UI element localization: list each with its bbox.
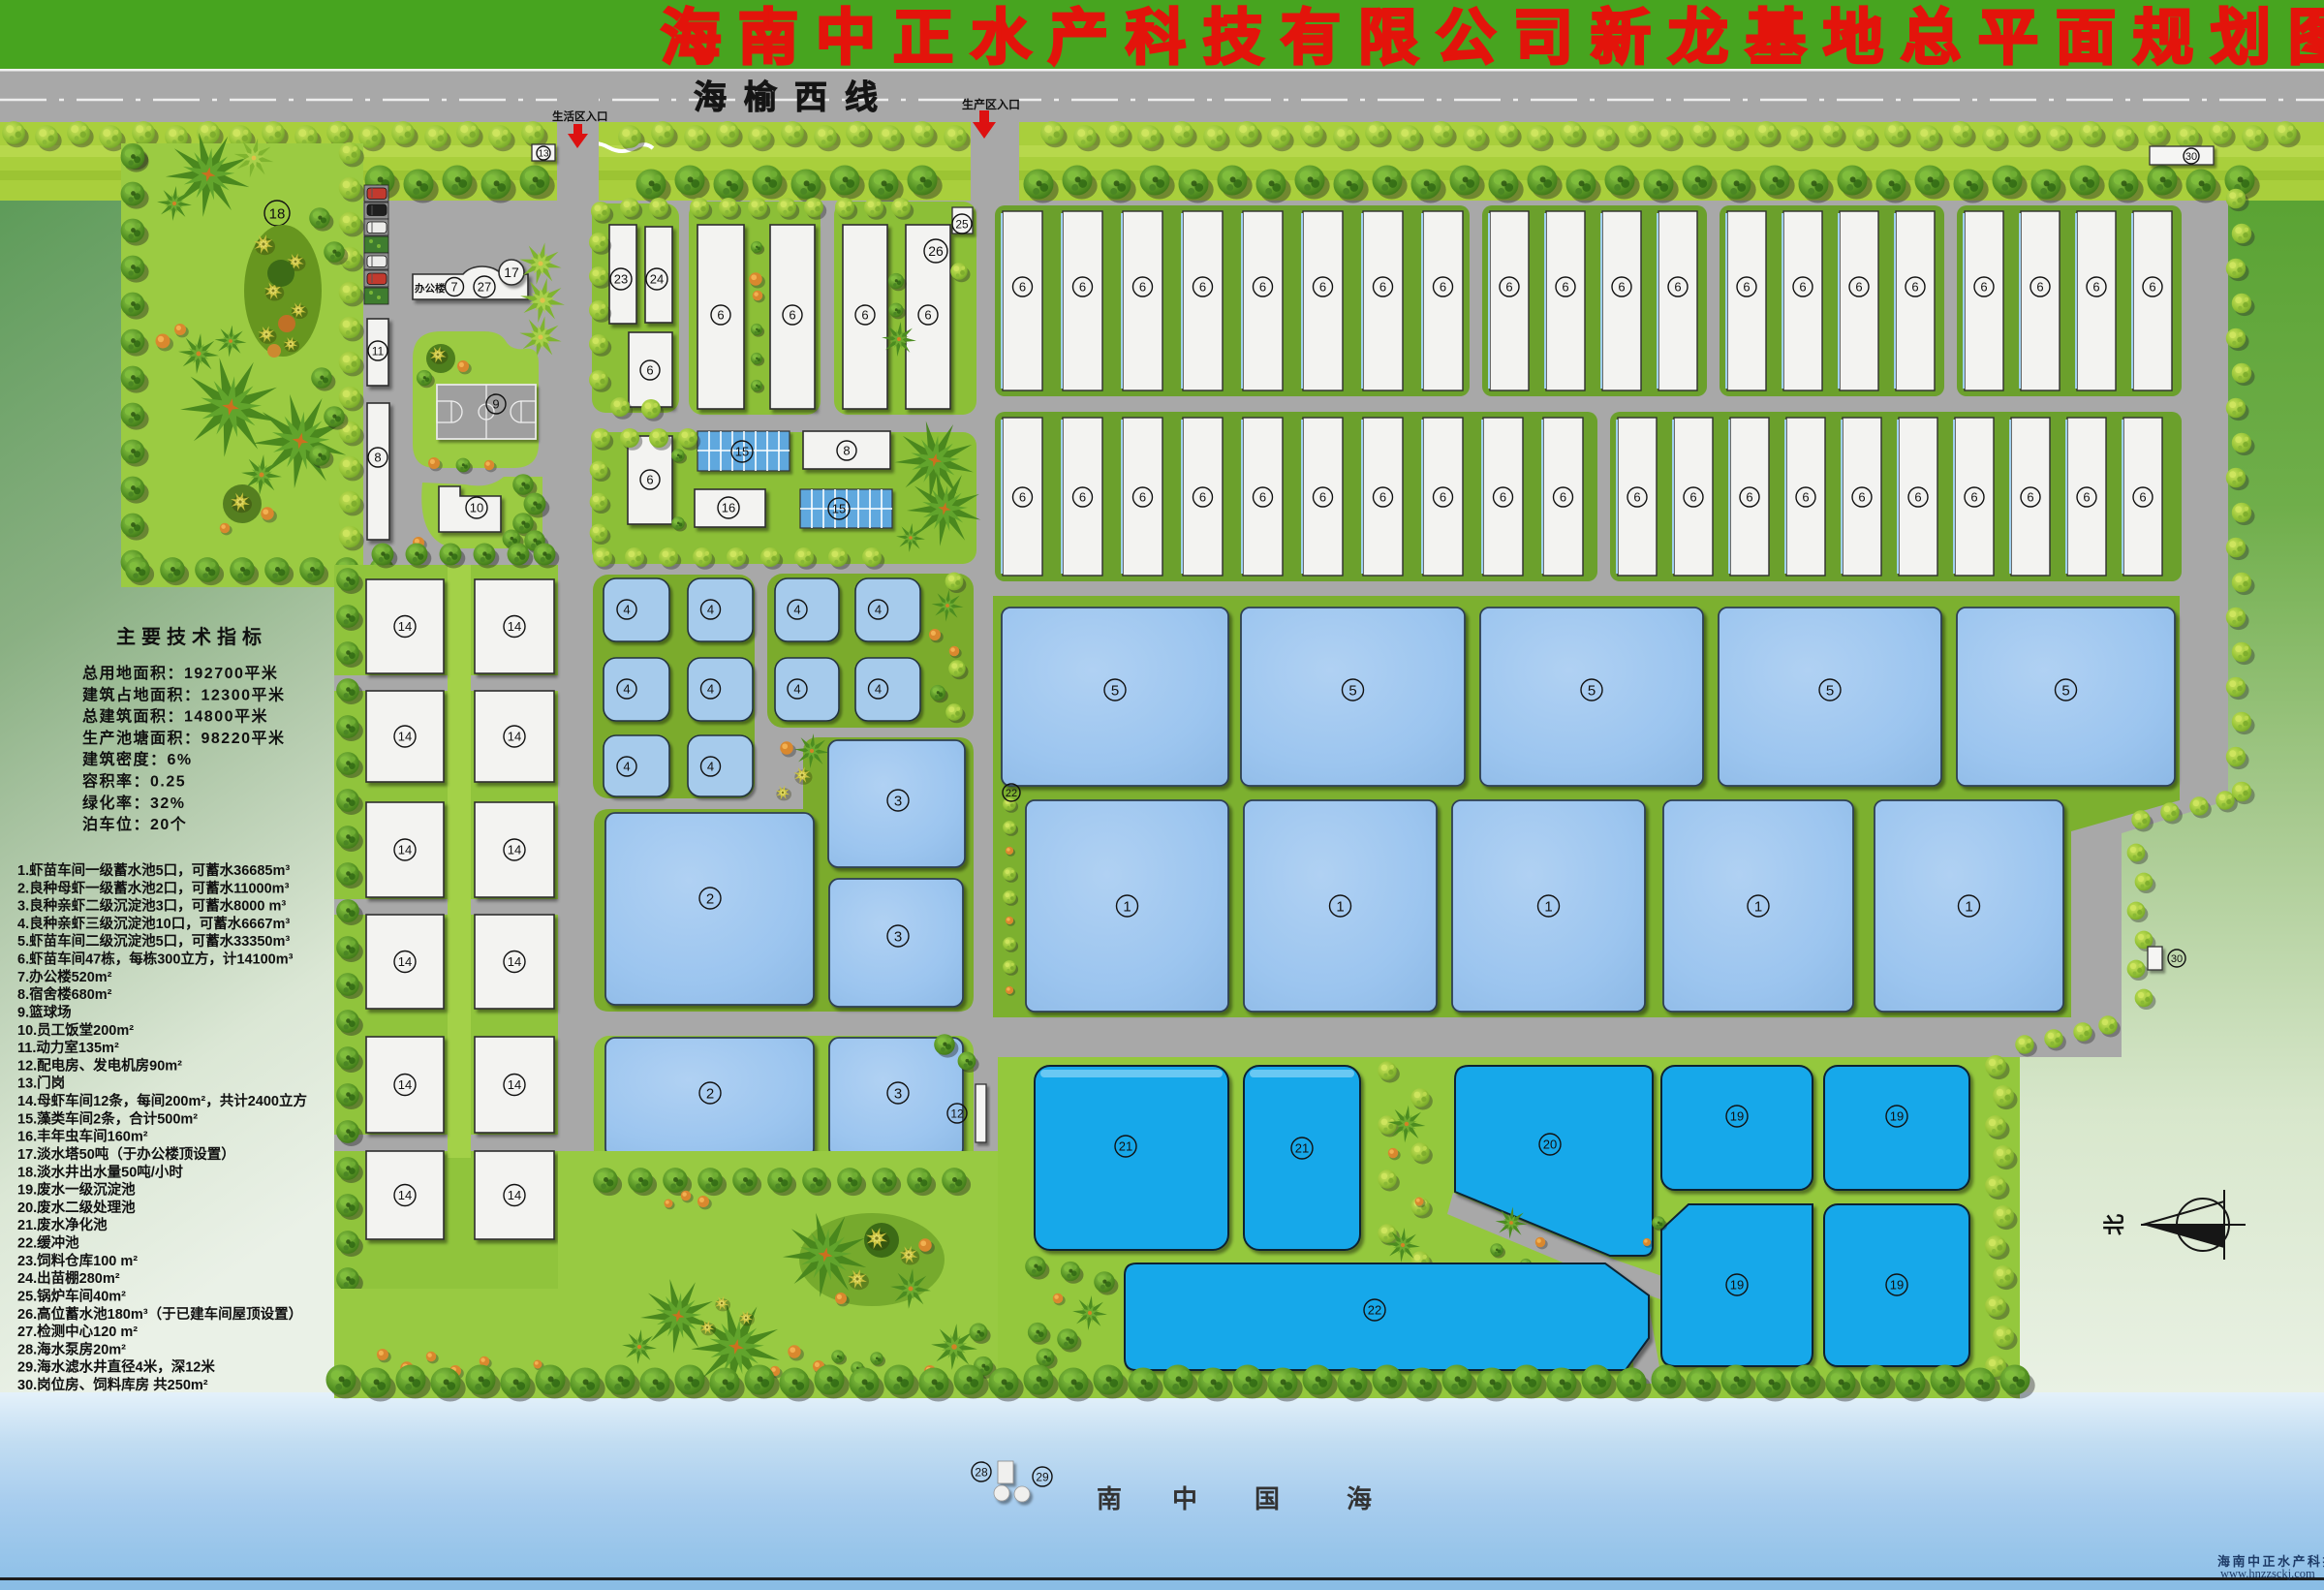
svg-text:20: 20 [1543, 1138, 1557, 1152]
svg-text:6: 6 [861, 308, 868, 323]
svg-text:14: 14 [508, 1077, 521, 1092]
svg-text:21.废水净化池: 21.废水净化池 [17, 1216, 108, 1233]
svg-text:25: 25 [955, 217, 969, 231]
svg-text:6: 6 [1674, 280, 1681, 295]
svg-text:4: 4 [793, 603, 800, 617]
svg-text:17: 17 [504, 265, 519, 280]
svg-text:6: 6 [1019, 280, 1026, 295]
svg-text:19: 19 [1730, 1278, 1744, 1293]
svg-text:15.藻类车间2条，合计500m²: 15.藻类车间2条，合计500m² [17, 1109, 198, 1127]
svg-text:6: 6 [1019, 490, 1026, 505]
svg-text:10.员工饭堂200m²: 10.员工饭堂200m² [17, 1021, 134, 1039]
svg-text:14: 14 [398, 1077, 412, 1092]
svg-text:4: 4 [623, 760, 630, 774]
svg-text:6: 6 [1259, 280, 1266, 295]
svg-text:4: 4 [875, 682, 882, 697]
svg-text:23: 23 [614, 272, 628, 287]
svg-text:4: 4 [707, 603, 714, 617]
svg-text:1: 1 [1336, 898, 1344, 915]
svg-text:19: 19 [1890, 1278, 1904, 1293]
svg-text:1: 1 [1965, 898, 1972, 915]
svg-text:14.母虾车间12条，每间200m²，共计2400立方: 14.母虾车间12条，每间200m²，共计2400立方 [17, 1092, 307, 1109]
svg-text:28.海水泵房20m²: 28.海水泵房20m² [17, 1340, 126, 1357]
svg-text:5: 5 [1588, 682, 1596, 699]
svg-text:6: 6 [1689, 490, 1696, 505]
svg-text:26: 26 [928, 243, 944, 259]
svg-text:30.岗位房、饲料库房 共250m²: 30.岗位房、饲料库房 共250m² [17, 1376, 208, 1393]
svg-text:中: 中 [1172, 1484, 1197, 1513]
svg-text:容积率：0.25: 容积率：0.25 [81, 772, 186, 791]
svg-text:12: 12 [950, 1107, 964, 1120]
svg-text:6: 6 [717, 308, 724, 323]
svg-text:9.篮球场: 9.篮球场 [17, 1003, 72, 1020]
svg-text:绿化率：32%: 绿化率：32% [82, 794, 186, 812]
svg-text:14: 14 [398, 1188, 412, 1202]
svg-text:6: 6 [1802, 490, 1809, 505]
svg-text:6: 6 [2139, 490, 2146, 505]
svg-text:6: 6 [1743, 280, 1750, 295]
svg-text:6: 6 [1199, 280, 1206, 295]
svg-text:6: 6 [1259, 490, 1266, 505]
svg-text:21: 21 [1119, 1139, 1132, 1154]
svg-text:6: 6 [924, 308, 931, 323]
svg-text:主要技术指标: 主要技术指标 [116, 625, 267, 648]
svg-text:14: 14 [398, 843, 412, 857]
svg-text:14: 14 [398, 954, 412, 969]
svg-text:1: 1 [1544, 898, 1552, 915]
svg-text:5: 5 [1111, 682, 1119, 699]
svg-text:6: 6 [2036, 280, 2043, 295]
svg-text:6: 6 [2027, 490, 2033, 505]
svg-text:总建筑面积：14800平米: 总建筑面积：14800平米 [82, 707, 268, 726]
svg-text:19: 19 [1730, 1109, 1744, 1124]
svg-text:4: 4 [875, 603, 882, 617]
svg-text:生产区入口: 生产区入口 [962, 97, 1020, 111]
svg-text:海: 海 [1347, 1484, 1372, 1513]
svg-text:6: 6 [1379, 280, 1386, 295]
svg-text:5.虾苗车间二级沉淀池5口，可蓄水33350m³: 5.虾苗车间二级沉淀池5口，可蓄水33350m³ [17, 932, 290, 950]
svg-text:泊车位：20个: 泊车位：20个 [82, 815, 187, 833]
svg-text:14: 14 [508, 730, 521, 744]
svg-text:6: 6 [1911, 280, 1918, 295]
svg-text:6.虾苗车间47栋，每栋300立方，计14100m³: 6.虾苗车间47栋，每栋300立方，计14100m³ [17, 951, 294, 968]
svg-text:26.高位蓄水池180m³（于已建车间屋顶设置）: 26.高位蓄水池180m³（于已建车间屋顶设置） [17, 1305, 302, 1323]
svg-text:4: 4 [707, 760, 714, 774]
svg-text:8: 8 [843, 444, 850, 458]
svg-text:1.虾苗车间一级蓄水池5口，可蓄水36685m³: 1.虾苗车间一级蓄水池5口，可蓄水36685m³ [17, 861, 290, 879]
svg-text:30: 30 [2185, 151, 2197, 163]
svg-text:6: 6 [1855, 280, 1862, 295]
svg-text:6: 6 [2083, 490, 2090, 505]
svg-text:4: 4 [623, 682, 630, 697]
svg-text:14: 14 [508, 843, 521, 857]
svg-text:12.配电房、发电机房90m²: 12.配电房、发电机房90m² [17, 1056, 182, 1074]
svg-text:6: 6 [2149, 280, 2155, 295]
svg-text:办公楼: 办公楼 [415, 282, 446, 295]
svg-text:6: 6 [1079, 490, 1086, 505]
svg-text:22: 22 [1368, 1303, 1381, 1318]
svg-text:6: 6 [1746, 490, 1752, 505]
svg-text:海南中正水产科技有限公司新龙基地总平面规划图: 海南中正水产科技有限公司新龙基地总平面规划图 [661, 5, 2324, 72]
svg-text:6: 6 [1500, 490, 1506, 505]
svg-text:17.淡水塔50吨（于办公楼顶设置）: 17.淡水塔50吨（于办公楼顶设置） [17, 1145, 235, 1163]
svg-text:6: 6 [646, 473, 653, 487]
svg-text:19: 19 [1890, 1109, 1904, 1124]
svg-text:6: 6 [1970, 490, 1977, 505]
svg-text:6: 6 [1560, 490, 1566, 505]
svg-text:6: 6 [1858, 490, 1865, 505]
svg-text:18.淡水井出水量50吨/小时: 18.淡水井出水量50吨/小时 [17, 1163, 183, 1180]
svg-text:6: 6 [1199, 490, 1206, 505]
svg-text:6: 6 [1562, 280, 1568, 295]
svg-text:9: 9 [492, 397, 499, 412]
svg-text:24.出苗棚280m²: 24.出苗棚280m² [17, 1269, 120, 1287]
svg-text:1: 1 [1754, 898, 1762, 915]
svg-text:15: 15 [735, 445, 749, 459]
svg-text:6: 6 [1505, 280, 1512, 295]
svg-text:7: 7 [450, 280, 457, 295]
svg-text:27.检测中心120 m²: 27.检测中心120 m² [17, 1323, 138, 1340]
svg-text:6: 6 [1440, 280, 1446, 295]
svg-text:6: 6 [1139, 280, 1146, 295]
svg-text:11.动力室135m²: 11.动力室135m² [17, 1039, 119, 1056]
svg-text:6: 6 [1618, 280, 1625, 295]
svg-text:6: 6 [1139, 490, 1146, 505]
svg-text:4: 4 [623, 603, 630, 617]
svg-text:6: 6 [1633, 490, 1640, 505]
svg-text:22.缓冲池: 22.缓冲池 [17, 1234, 79, 1252]
svg-text:海榆西线: 海榆西线 [694, 79, 895, 116]
svg-text:国: 国 [1255, 1484, 1280, 1513]
svg-text:6: 6 [646, 363, 653, 378]
svg-text:5: 5 [1826, 682, 1834, 699]
svg-text:11: 11 [372, 344, 385, 358]
svg-text:10: 10 [470, 501, 483, 515]
svg-text:www.hnzzsckj.com: www.hnzzsckj.com [2220, 1567, 2315, 1580]
svg-text:3: 3 [894, 928, 902, 945]
svg-text:北: 北 [2102, 1214, 2126, 1235]
svg-text:7.办公楼520m²: 7.办公楼520m² [17, 968, 112, 985]
svg-text:20.废水二级处理池: 20.废水二级处理池 [17, 1199, 136, 1216]
svg-text:建筑占地面积：12300平米: 建筑占地面积：12300平米 [82, 685, 286, 703]
svg-text:16.丰年虫车间160m²: 16.丰年虫车间160m² [17, 1128, 148, 1145]
svg-text:16: 16 [722, 501, 735, 515]
svg-text:建筑密度：6%: 建筑密度：6% [82, 750, 193, 768]
svg-text:南: 南 [1097, 1484, 1122, 1513]
svg-text:5: 5 [2061, 682, 2069, 699]
svg-text:生产池塘面积：98220平米: 生产池塘面积：98220平米 [82, 729, 286, 747]
svg-text:23.饲料仓库100 m²: 23.饲料仓库100 m² [17, 1252, 138, 1269]
svg-text:22: 22 [1006, 788, 1017, 799]
svg-text:24: 24 [650, 272, 664, 287]
svg-text:14: 14 [398, 619, 412, 634]
svg-text:1: 1 [1123, 898, 1131, 915]
svg-text:18: 18 [269, 205, 286, 222]
svg-text:4: 4 [793, 682, 800, 697]
svg-text:3: 3 [894, 1085, 902, 1102]
svg-text:25.锅炉车间40m²: 25.锅炉车间40m² [17, 1287, 126, 1304]
svg-text:13.门岗: 13.门岗 [17, 1075, 65, 1092]
svg-text:2.良种母虾一级蓄水池2口，可蓄水11000m³: 2.良种母虾一级蓄水池2口，可蓄水11000m³ [17, 879, 290, 896]
svg-text:14: 14 [398, 730, 412, 744]
svg-text:6: 6 [1980, 280, 1987, 295]
svg-text:6: 6 [1319, 490, 1326, 505]
svg-text:19.废水一级沉淀池: 19.废水一级沉淀池 [17, 1181, 136, 1199]
svg-text:总用地面积：192700平米: 总用地面积：192700平米 [82, 664, 278, 682]
svg-text:2: 2 [706, 1085, 714, 1102]
svg-text:21: 21 [1295, 1141, 1309, 1156]
svg-text:生活区入口: 生活区入口 [552, 109, 608, 123]
svg-text:6: 6 [1379, 490, 1386, 505]
svg-text:29: 29 [1036, 1470, 1049, 1483]
svg-text:3: 3 [894, 793, 902, 809]
svg-text:8: 8 [374, 451, 381, 465]
svg-text:6: 6 [1440, 490, 1446, 505]
svg-text:4.良种亲虾三级沉淀池10口，可蓄水6667m³: 4.良种亲虾三级沉淀池10口，可蓄水6667m³ [17, 915, 290, 932]
svg-text:6: 6 [2092, 280, 2099, 295]
svg-text:4: 4 [707, 682, 714, 697]
svg-text:6: 6 [789, 308, 795, 323]
svg-text:6: 6 [1319, 280, 1326, 295]
svg-text:8.宿舍楼680m²: 8.宿舍楼680m² [17, 985, 112, 1003]
svg-text:13: 13 [538, 149, 549, 160]
svg-text:27: 27 [478, 280, 491, 295]
svg-text:14: 14 [508, 1188, 521, 1202]
svg-text:6: 6 [1799, 280, 1806, 295]
svg-text:29.海水滤水井直径4米，深12米: 29.海水滤水井直径4米，深12米 [17, 1358, 215, 1376]
svg-text:30: 30 [2171, 953, 2183, 965]
svg-text:15: 15 [832, 502, 846, 516]
svg-text:28: 28 [975, 1465, 988, 1479]
svg-text:6: 6 [1079, 280, 1086, 295]
svg-text:6: 6 [1914, 490, 1921, 505]
svg-text:5: 5 [1348, 682, 1356, 699]
svg-text:2: 2 [706, 890, 714, 907]
svg-text:14: 14 [508, 954, 521, 969]
svg-text:3.良种亲虾二级沉淀池3口，可蓄水8000 m³: 3.良种亲虾二级沉淀池3口，可蓄水8000 m³ [17, 897, 286, 915]
svg-text:14: 14 [508, 619, 521, 634]
